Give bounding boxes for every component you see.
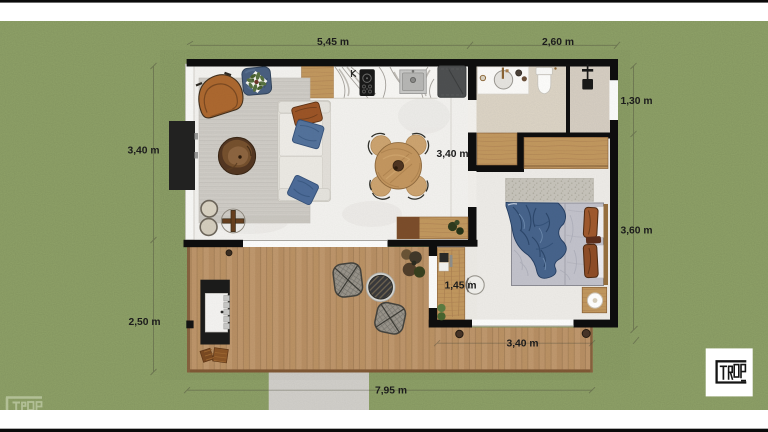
svg-text:7,95 m: 7,95 m bbox=[375, 386, 407, 397]
svg-text:2,50 m: 2,50 m bbox=[128, 317, 160, 328]
svg-text:5,45 m: 5,45 m bbox=[317, 37, 349, 48]
svg-text:3,40 m: 3,40 m bbox=[127, 146, 159, 157]
svg-text:2,60 m: 2,60 m bbox=[542, 37, 574, 48]
